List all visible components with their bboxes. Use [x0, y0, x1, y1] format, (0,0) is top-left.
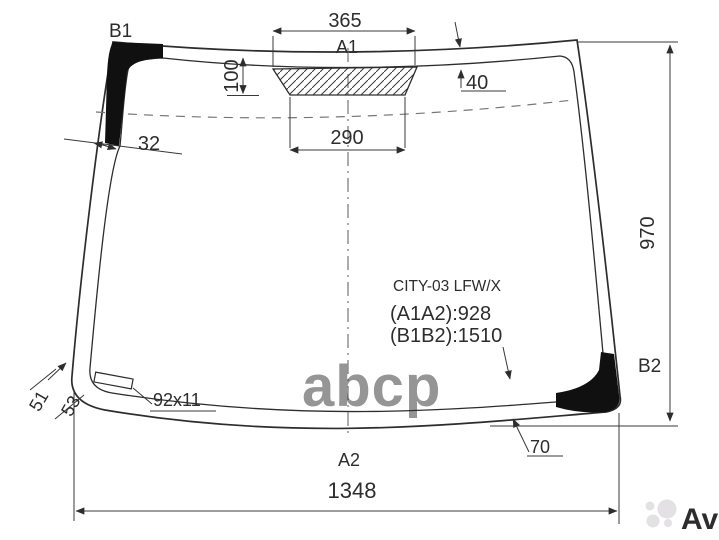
label-a2: A2 [338, 450, 360, 470]
measure-b1b2: (B1B2):1510 [390, 325, 502, 347]
label-a1: A1 [336, 37, 358, 57]
dim-text-70: 70 [530, 437, 550, 457]
label-b2: B2 [638, 356, 661, 377]
watermark-avito-text: Avito [681, 503, 719, 536]
dim-text-100: 100 [221, 59, 243, 92]
watermark-abcp: abcp [302, 354, 441, 419]
dim-text-290: 290 [330, 127, 363, 149]
dim-text-32: 32 [138, 133, 160, 155]
windshield-diagram-page: B1 365 A1 100 40 290 32 970 B2 CITY-03 L… [0, 0, 719, 540]
windshield-diagram: B1 365 A1 100 40 290 32 970 B2 CITY-03 L… [0, 0, 719, 540]
dim-text-970: 970 [637, 216, 659, 249]
part-code: CITY-03 LFW/X [393, 278, 502, 295]
dim-text-1348: 1348 [328, 478, 377, 503]
frit-band-hatched [273, 67, 417, 95]
dim-text-365: 365 [328, 10, 361, 32]
label-b1: B1 [109, 21, 132, 42]
dim-text-40: 40 [466, 72, 488, 94]
measure-a1a2: (A1A2):928 [390, 303, 491, 325]
dim-text-92x11: 92x11 [153, 390, 201, 410]
